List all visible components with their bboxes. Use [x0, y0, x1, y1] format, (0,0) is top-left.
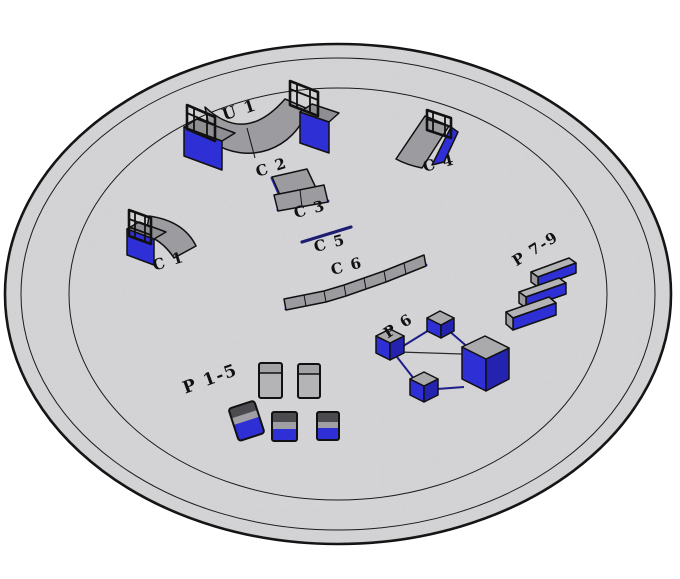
- p4-cube-front: [272, 429, 297, 441]
- skatepark-3d-render: U 1 C 1 C 2 C 3 C 4 C 5 C 6 P 6 P 7-9 P …: [0, 0, 680, 579]
- p5-cube-band: [317, 422, 339, 429]
- p2-slab: [298, 364, 320, 398]
- p2-slab-topband: [298, 364, 320, 374]
- p4-cube-band: [272, 422, 297, 430]
- p6-box-large: [462, 336, 509, 391]
- p1-slab: [259, 363, 282, 398]
- p4-cube: [272, 412, 297, 441]
- p6-box-bottom: [410, 372, 438, 402]
- p5-cube: [317, 412, 339, 440]
- p5-cube-front: [317, 428, 339, 440]
- p1-slab-topband: [259, 363, 282, 373]
- skatepark-scene: U 1 C 1 C 2 C 3 C 4 C 5 C 6 P 6 P 7-9 P …: [0, 0, 680, 579]
